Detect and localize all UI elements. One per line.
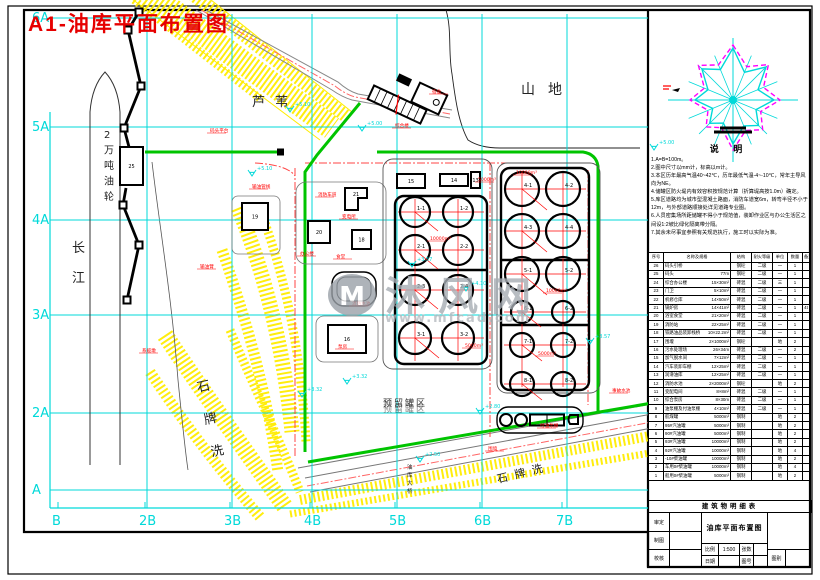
- building-number: 25: [128, 164, 134, 170]
- schedule-cell: 加气脱水间7×12m²: [664, 354, 731, 362]
- axis-label-left: 2A: [32, 406, 49, 421]
- schedule-cell: 二级: [752, 279, 773, 287]
- schedule-cell: 25: [649, 270, 664, 278]
- schedule-row: 9油泵棚及付油泵棚4×10m²砖混二级一1: [649, 405, 810, 413]
- watermark-url: www.mfcad.com: [385, 311, 531, 326]
- tb-val-jiaohe: [669, 549, 701, 567]
- tank-label: 4-2: [565, 183, 573, 189]
- schedule-cell: 砖混: [731, 371, 752, 379]
- schedule-cell: [752, 430, 773, 438]
- schedule-cell: 一: [773, 388, 788, 396]
- schedule-cell: [803, 447, 810, 455]
- windrose-center: [729, 96, 737, 104]
- building-number: 19: [252, 215, 258, 221]
- schedule-cell: 砖混: [731, 296, 752, 304]
- schedule-cell: 2: [788, 472, 803, 480]
- elevation-arrow: [358, 125, 366, 131]
- schedule-cell: 1: [788, 296, 803, 304]
- schedule-cell: [803, 405, 810, 413]
- schedule-row: 24综合办公楼15×30m²砖混二级三1: [649, 279, 810, 287]
- schedule-cell: 二级: [752, 304, 773, 312]
- schedule-cell: 一: [773, 296, 788, 304]
- tb-label-zhitu: 制图: [649, 531, 669, 549]
- elevation-value: +3.57: [417, 257, 432, 263]
- schedule-cell: 砖混: [731, 396, 752, 404]
- note-line: 4.储罐区防火堤内有效容积按规范计算（折算堤高按1.0m）确定。: [651, 188, 808, 196]
- axis-label-bottom: 2B: [139, 514, 156, 529]
- building-number: 16: [344, 337, 350, 343]
- schedule-row: 593#汽油罐10000m³钢制地2: [649, 438, 810, 446]
- region-label: 2万吨油轮: [104, 130, 114, 203]
- tb-label-shending: 审定: [649, 513, 669, 531]
- schedule-cell: 变配电间8×8m²: [664, 388, 731, 396]
- schedule-cell: 一: [773, 304, 788, 312]
- schedule-cell: 1: [788, 371, 803, 379]
- schedule-cell: 钢制: [731, 447, 752, 455]
- tank-label: 4-1: [524, 183, 532, 189]
- schedule-cell: 污水处理场26×34m: [664, 346, 731, 354]
- schedule-cell: 1: [788, 363, 803, 371]
- schedule-cell: 油泵棚及付油泵棚4×10m²: [664, 405, 731, 413]
- schedule-cell: [803, 329, 810, 337]
- schedule-cell: [803, 396, 810, 404]
- schedule-cell: 一: [773, 262, 788, 270]
- axis-label-bottom: 4B: [304, 514, 321, 529]
- schedule-cell: 砖混: [731, 279, 752, 287]
- schedule-cell: [803, 312, 810, 320]
- schedule-cell: 1: [788, 262, 803, 270]
- schedule-cell: [752, 380, 773, 388]
- schedule-cell: [803, 279, 810, 287]
- tank-label: 1-1: [417, 206, 425, 212]
- schedule-cell: 24: [649, 279, 664, 287]
- mooring-dolphin: [138, 83, 145, 90]
- tank-label: 7-1: [524, 339, 532, 345]
- axis-label-left: 5A: [32, 120, 49, 135]
- schedule-row: 21锅炉房14×41m²砖混二级一14t: [649, 304, 810, 312]
- schedule-cell: 地: [773, 430, 788, 438]
- tank-leader: [522, 384, 542, 400]
- schedule-cell: 砖混: [731, 405, 752, 413]
- schedule-cell: 92#汽油罐10000m³: [664, 447, 731, 455]
- schedule-cell: 93#汽油罐10000m³: [664, 438, 731, 446]
- schedule-cell: 12: [649, 380, 664, 388]
- axis-label-bottom: 6B: [474, 514, 491, 529]
- schedule-cell: 18: [649, 329, 664, 337]
- elevation-value: +3.32: [307, 387, 322, 393]
- schedule-cell: 汽车装卸车棚12×25m²: [664, 363, 731, 371]
- elevation-value: +2.80: [485, 404, 500, 410]
- schedule-cell: 砖混: [731, 287, 752, 295]
- schedule-row: 15加气脱水间7×12m²砖混二级一1: [649, 354, 810, 362]
- schedule-row: 17围堰2×1000m²钢砼地2: [649, 338, 810, 346]
- schedule-row: 25码头77m钢砼二级一1: [649, 270, 810, 278]
- schedule-cell: 消防站22×25m²: [664, 321, 731, 329]
- title-block: 审定 制图 校核 油库平面布置图 比例 1:500 张数 日期 图号 图别: [648, 512, 811, 568]
- schedule-cell: 90#汽油罐5000m³: [664, 430, 731, 438]
- schedule-cell: [803, 354, 810, 362]
- tank-label: 1-2: [460, 206, 468, 212]
- pipeline-node: [277, 149, 284, 156]
- schedule-row: 23门卫5×10m²砖混二级一1: [649, 287, 810, 295]
- tb-class-label: 图别: [767, 549, 785, 567]
- tank-leader: [415, 212, 438, 231]
- region-label: 预留罐区: [383, 403, 427, 415]
- schedule-row: 10综合泵房8×30m砖混二级一1: [649, 396, 810, 404]
- schedule-cell: 地: [773, 338, 788, 346]
- tank-label: 7-2: [565, 339, 573, 345]
- schedule-cell: [803, 287, 810, 295]
- elevation-arrow: [248, 170, 256, 176]
- schedule-cell: [803, 270, 810, 278]
- schedule-cell: 钢砼: [731, 262, 752, 270]
- notes-heading: 说 明: [648, 142, 810, 155]
- schedule-cell: 21: [649, 304, 664, 312]
- schedule-cell: 9: [649, 405, 664, 413]
- col-struct: 结构: [731, 253, 752, 263]
- schedule-cell: 14: [649, 363, 664, 371]
- schedule-cell: 13: [649, 371, 664, 379]
- schedule-cell: 6: [649, 430, 664, 438]
- schedule-cell: 二级: [752, 329, 773, 337]
- schedule-cell: [803, 463, 810, 471]
- schedule-cell: [803, 262, 810, 270]
- tank-leader: [522, 189, 547, 210]
- mooring-dolphin: [120, 202, 127, 209]
- schedule-row: 20浴室食堂21×20m²砖混二级一1: [649, 312, 810, 320]
- schedule-cell: 2: [788, 338, 803, 346]
- watermark: M沐风网www.mfcad.com: [328, 274, 531, 326]
- schedule-cell: [803, 472, 810, 480]
- axis-label-bottom: 5B: [389, 514, 406, 529]
- schedule-cell: 一: [773, 396, 788, 404]
- schedule-cell: 5: [649, 438, 664, 446]
- schedule-cell: 二级: [752, 262, 773, 270]
- schedule-cell: 8: [649, 413, 664, 421]
- schedule-cell: 地: [773, 380, 788, 388]
- schedule-cell: 钢制: [731, 455, 752, 463]
- note-line: 3.本区历年最高气温40~42℃，历年最低气温-4~-10℃，常年主导风向为NE…: [651, 172, 808, 188]
- watermark-logo-letter: M: [339, 282, 365, 312]
- schedule-cell: 2: [788, 346, 803, 354]
- schedule-row: 2车用0#柴油罐10000m³钢制地4: [649, 463, 810, 471]
- schedule-cell: [752, 455, 773, 463]
- schedule-cell: 16: [649, 346, 664, 354]
- schedule-cell: [803, 346, 810, 354]
- building-schedule-table: 序号 名称及规格 结构 耐火等级 单位 数量 备注 26码头引桥钢砼二级一125…: [648, 252, 810, 481]
- schedule-cell: 船用0#柴油罐5000m³: [664, 472, 731, 480]
- schedule-header-row: 序号 名称及规格 结构 耐火等级 单位 数量 备注: [649, 253, 810, 263]
- schedule-row: 26码头引桥钢砼二级一1: [649, 262, 810, 270]
- schedule-cell: 砖混: [731, 363, 752, 371]
- schedule-cell: 浴室食堂21×20m²: [664, 312, 731, 320]
- mini-legend-arrow: [672, 88, 680, 92]
- tb-figno-label: 图号: [739, 555, 753, 567]
- schedule-cell: 2: [788, 430, 803, 438]
- schedule-row: 18铁路油品装卸栈桥10×22.2m²砖混二级一1: [649, 329, 810, 337]
- tb-drawing-name: 油库平面布置图: [701, 513, 767, 543]
- schedule-cell: 二级: [752, 354, 773, 362]
- schedule-cell: 7: [649, 422, 664, 430]
- schedule-cell: 一: [773, 287, 788, 295]
- schedule-cell: [803, 371, 810, 379]
- schedule-cell: 一: [773, 312, 788, 320]
- schedule-cell: [803, 380, 810, 388]
- schedule-cell: 3: [649, 455, 664, 463]
- schedule-cell: [752, 463, 773, 471]
- schedule-cell: [803, 388, 810, 396]
- schedule-cell: 砖混: [731, 346, 752, 354]
- schedule-cell: 15: [649, 354, 664, 362]
- schedule-cell: [803, 296, 810, 304]
- region-label: 长江: [72, 241, 85, 286]
- schedule-cell: [752, 447, 773, 455]
- schedule-cell: 2: [788, 413, 803, 421]
- schedule-cell: 1: [649, 472, 664, 480]
- windrose-spoke: [699, 66, 733, 100]
- schedule-cell: 钢制: [731, 430, 752, 438]
- schedule-cell: 钢制: [731, 422, 752, 430]
- tank-label: 3-2: [460, 332, 468, 338]
- tb-class-value: [785, 549, 810, 567]
- note-line: 6.人员密集场所距储罐不得小于规范值，装卸作业区与办公生活区之间设1:2坡比绿化…: [651, 212, 808, 228]
- mini-legend-mark: [663, 86, 671, 89]
- col-note: 备注: [803, 253, 810, 263]
- schedule-row: 690#汽油罐5000m³钢制地2: [649, 430, 810, 438]
- schedule-cell: 2: [788, 380, 803, 388]
- schedule-cell: 一: [773, 329, 788, 337]
- schedule-cell: 二级: [752, 363, 773, 371]
- schedule-body: 26码头引桥钢砼二级一125码头77m钢砼二级一124综合办公楼15×30m²砖…: [649, 262, 810, 480]
- schedule-cell: 1: [788, 304, 803, 312]
- tank-label: 4-4: [565, 225, 573, 231]
- shore-line: [152, 162, 188, 470]
- col-no: 序号: [649, 253, 664, 263]
- schedule-cell: 二级: [752, 312, 773, 320]
- schedule-cell: 地: [773, 447, 788, 455]
- schedule-cell: 4: [788, 463, 803, 471]
- notes-block: 1.A=B=100m。2.图中尺寸以mm计，标高以m计。3.本区历年最高气温40…: [651, 156, 808, 237]
- schedule-cell: 二级: [752, 371, 773, 379]
- schedule-cell: 4t: [803, 304, 810, 312]
- schedule-row: 12消防水池2×2000m³钢砼地2: [649, 380, 810, 388]
- schedule-cell: 4: [788, 447, 803, 455]
- schedule-cell: 砖混: [731, 388, 752, 396]
- tank-label: 3-1: [417, 332, 425, 338]
- schedule-cell: 二级: [752, 346, 773, 354]
- elevation-value: +5.10: [257, 166, 272, 172]
- schedule-cell: 综合办公楼15×30m²: [664, 279, 731, 287]
- schedule-cell: 二级: [752, 296, 773, 304]
- schedule-cell: 地: [773, 422, 788, 430]
- schedule-row: 19消防站22×25m²砖混二级一1: [649, 321, 810, 329]
- schedule-cell: 机修仓库14×50m²: [664, 296, 731, 304]
- tb-date-value: [718, 555, 739, 567]
- schedule-cell: 一: [773, 363, 788, 371]
- note-line: 1.A=B=100m。: [651, 156, 808, 164]
- schedule-row: 14汽车装卸车棚12×25m²砖混二级一1: [649, 363, 810, 371]
- schedule-cell: 1: [788, 270, 803, 278]
- tb-figno-value: [753, 555, 767, 567]
- schedule-cell: 润滑油库12×25m²: [664, 371, 731, 379]
- schedule-cell: [803, 430, 810, 438]
- building-number: 18: [358, 238, 364, 244]
- schedule-cell: [803, 455, 810, 463]
- schedule-cell: [752, 413, 773, 421]
- schedule-row: 11变配电间8×8m²砖混二级一1: [649, 388, 810, 396]
- schedule-cell: 22: [649, 296, 664, 304]
- schedule-cell: 钢砼: [731, 380, 752, 388]
- schedule-cell: 二级: [752, 405, 773, 413]
- schedule-cell: 砖混: [731, 354, 752, 362]
- axis-label-left: A: [32, 483, 41, 498]
- schedule-cell: 17: [649, 338, 664, 346]
- mooring-dolphin: [124, 297, 131, 304]
- schedule-cell: 砖混: [731, 312, 752, 320]
- schedule-cell: 综合泵房8×30m: [664, 396, 731, 404]
- drawing-title: A1-油库平面布置图: [28, 8, 229, 38]
- tank-label: 2-2: [460, 244, 468, 250]
- schedule-cell: 码头77m: [664, 270, 731, 278]
- schedule-cell: 消防水池2×2000m³: [664, 380, 731, 388]
- drawing-sheet: 6A5A4A3A2AAB2B3B4B5B6B7B1-11-22-12-22-32…: [0, 0, 820, 580]
- schedule-cell: 19: [649, 321, 664, 329]
- tb-org-box: [767, 513, 810, 549]
- schedule-cell: [752, 438, 773, 446]
- schedule-cell: 1: [788, 279, 803, 287]
- col-qty: 数量: [788, 253, 803, 263]
- schedule-cell: 1: [788, 287, 803, 295]
- schedule-cell: [803, 363, 810, 371]
- schedule-cell: 2: [788, 422, 803, 430]
- tb-val-shending: [669, 513, 701, 531]
- schedule-cell: 钢制: [731, 413, 752, 421]
- axis-label-bottom: 7B: [556, 514, 573, 529]
- schedule-cell: [803, 422, 810, 430]
- schedule-cell: 1: [788, 354, 803, 362]
- tank-label: 5-2: [565, 268, 573, 274]
- schedule-cell: 26: [649, 262, 664, 270]
- note-line: 5.库区道路均为城市型混凝土路面，消防车道宽6m，转弯半径不小于12m，与外部道…: [651, 196, 808, 212]
- schedule-cell: [752, 422, 773, 430]
- mooring-dolphin: [136, 242, 143, 249]
- schedule-row: 22机修仓库14×50m²砖混二级一1: [649, 296, 810, 304]
- building-solid: [396, 73, 412, 86]
- schedule-cell: 码头引桥: [664, 262, 731, 270]
- schedule-cell: 95#汽油罐5000m³: [664, 422, 731, 430]
- pipeline-south: [308, 403, 652, 462]
- schedule-cell: 围堰2×1000m²: [664, 338, 731, 346]
- schedule-cell: 地: [773, 413, 788, 421]
- schedule-cell: 钢制: [731, 438, 752, 446]
- schedule-cell: 车用0#柴油罐10000m³: [664, 463, 731, 471]
- schedule-cell: 砖混: [731, 329, 752, 337]
- schedule-row: 1船用0#柴油罐5000m³钢制地2: [649, 472, 810, 480]
- schedule-cell: 门卫5×10m²: [664, 287, 731, 295]
- schedule-cell: 2: [649, 463, 664, 471]
- schedule-cell: 钢砼: [731, 338, 752, 346]
- axis-label-left: 3A: [32, 308, 49, 323]
- schedule-cell: 铁路油品装卸栈桥10×22.2m²: [664, 329, 731, 337]
- col-name: 名称及规格: [664, 253, 731, 263]
- schedule-cell: [752, 472, 773, 480]
- mooring-dolphin: [121, 125, 128, 132]
- axis-label-left: 4A: [32, 213, 49, 228]
- schedule-cell: 1: [788, 329, 803, 337]
- schedule-cell: 航煤罐5000m³: [664, 413, 731, 421]
- schedule-row: 16污水处理场26×34m砖混二级一2: [649, 346, 810, 354]
- elevation-value: +5.10: [295, 102, 310, 108]
- small-tank: [500, 414, 512, 426]
- schedule-cell: 一: [773, 270, 788, 278]
- schedule-cell: -10#柴油罐10000m³: [664, 455, 731, 463]
- schedule-cell: 2: [788, 455, 803, 463]
- schedule-cell: 二级: [752, 321, 773, 329]
- tank-leader: [522, 231, 547, 252]
- tank-label: 8-1: [524, 378, 532, 384]
- schedule-row: 492#汽油罐10000m³钢制地4: [649, 447, 810, 455]
- building-number: 20: [316, 230, 322, 236]
- schedule-cell: 1: [788, 396, 803, 404]
- tb-label-jiaohe: 校核: [649, 549, 669, 567]
- elevation-value: +3.32: [352, 374, 367, 380]
- region-label: 山地: [521, 82, 575, 98]
- tb-sheets-value: [753, 543, 767, 555]
- schedule-cell: 二级: [752, 270, 773, 278]
- col-unit: 单位: [773, 253, 788, 263]
- tank-label: 2-1: [417, 244, 425, 250]
- region-label: 芦苇: [252, 95, 298, 110]
- tb-scale-label: 比例: [701, 543, 718, 555]
- schedule-cell: [752, 338, 773, 346]
- schedule-cell: [803, 321, 810, 329]
- schedule-cell: 二级: [752, 396, 773, 404]
- rotated-building-group: [396, 73, 412, 86]
- schedule-cell: 20: [649, 312, 664, 320]
- tank-label: 8-2: [565, 378, 573, 384]
- schedule-cell: 地: [773, 438, 788, 446]
- schedule-row: 3-10#柴油罐10000m³钢制地2: [649, 455, 810, 463]
- schedule-cell: 砖混: [731, 304, 752, 312]
- building-number: 15: [408, 179, 414, 185]
- schedule-cell: 二级: [752, 388, 773, 396]
- schedule-cell: 1: [788, 321, 803, 329]
- tank-label: 6-2: [565, 306, 573, 312]
- elevation-value: +3.57: [595, 334, 610, 340]
- schedule-cell: [803, 438, 810, 446]
- axis-label-bottom: B: [52, 514, 61, 529]
- schedule-cell: 一: [773, 371, 788, 379]
- schedule-row: 8航煤罐5000m³钢制地2: [649, 413, 810, 421]
- note-line: 2.图中尺寸以mm计，标高以m计。: [651, 164, 808, 172]
- tb-sheets-label: 张数: [739, 543, 753, 555]
- elevation-value: +2.50: [425, 452, 440, 458]
- schedule-cell: 23: [649, 287, 664, 295]
- tank-label: 4-3: [524, 225, 532, 231]
- schedule-cell: 2: [788, 438, 803, 446]
- tb-scale-value: 1:500: [718, 543, 739, 555]
- schedule-cell: 砖混: [731, 321, 752, 329]
- tb-val-zhitu: [669, 531, 701, 549]
- schedule-cell: 一: [773, 354, 788, 362]
- schedule-cell: 二级: [752, 287, 773, 295]
- schedule-cell: 一: [773, 321, 788, 329]
- schedule-cell: [803, 413, 810, 421]
- schedule-cell: 一: [773, 405, 788, 413]
- axis-label-bottom: 3B: [224, 514, 241, 529]
- schedule-cell: 1: [788, 388, 803, 396]
- building-number: 21: [353, 192, 359, 198]
